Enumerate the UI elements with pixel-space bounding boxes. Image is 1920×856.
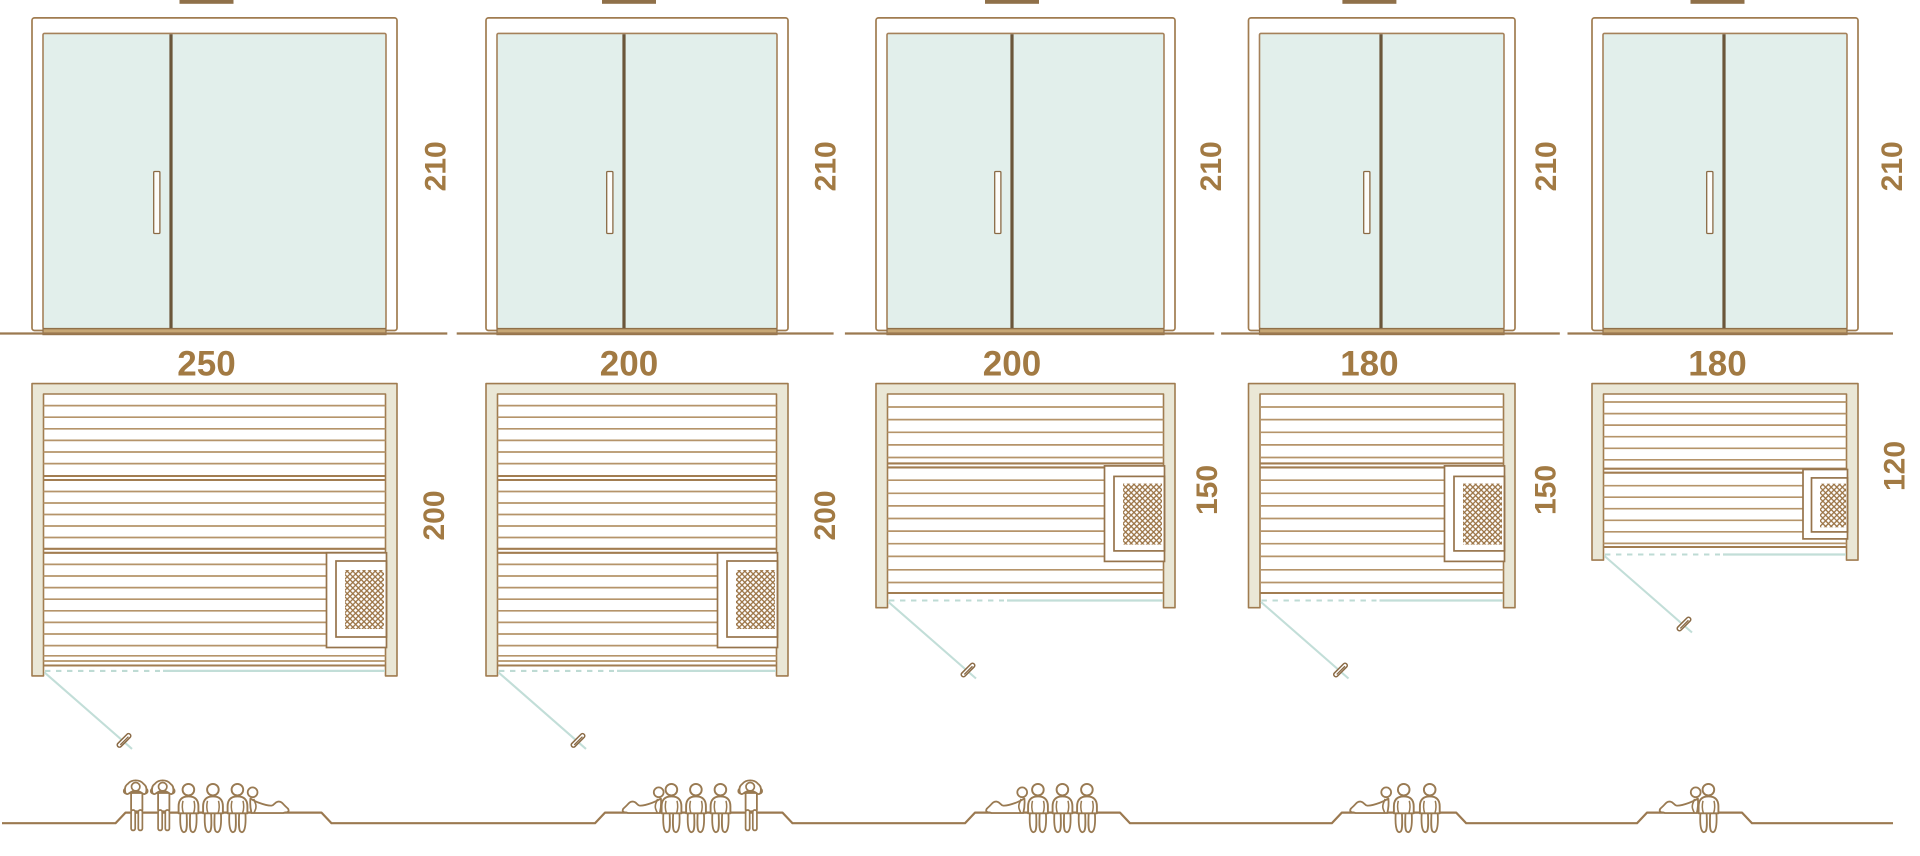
svg-text:150: 150 — [1191, 465, 1224, 515]
svg-text:200: 200 — [983, 345, 1041, 384]
svg-text:210: 210 — [1530, 141, 1563, 191]
svg-text:250: 250 — [177, 345, 235, 384]
svg-text:180: 180 — [1688, 345, 1746, 384]
svg-text:200: 200 — [809, 490, 842, 540]
svg-text:210: 210 — [420, 141, 453, 191]
svg-text:210: 210 — [1876, 141, 1909, 191]
svg-text:120: 120 — [1879, 441, 1912, 491]
svg-text:200: 200 — [418, 490, 451, 540]
svg-text:200: 200 — [600, 345, 658, 384]
svg-text:180: 180 — [1340, 345, 1398, 384]
svg-text:150: 150 — [1530, 465, 1563, 515]
svg-text:210: 210 — [810, 141, 843, 191]
svg-text:210: 210 — [1195, 141, 1228, 191]
